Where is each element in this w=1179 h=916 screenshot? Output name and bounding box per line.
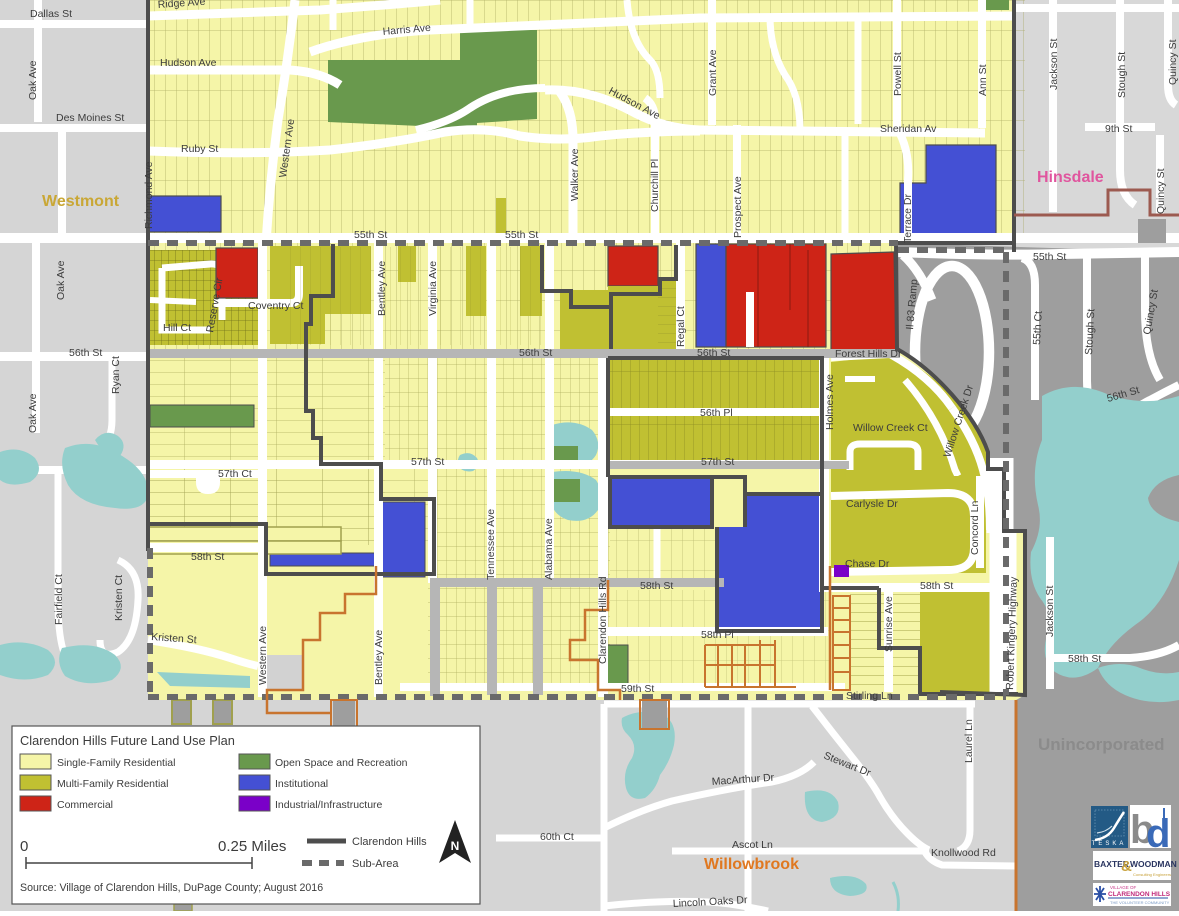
svg-text:Westmont: Westmont [42, 193, 120, 210]
svg-text:VILLAGE OF: VILLAGE OF [1110, 885, 1137, 890]
svg-text:Powell St: Powell St [892, 52, 904, 96]
svg-text:Oak Ave: Oak Ave [27, 60, 39, 100]
svg-text:N: N [451, 839, 460, 853]
svg-text:0.25 Miles: 0.25 Miles [218, 838, 286, 855]
svg-text:Prospect Ave: Prospect Ave [732, 176, 744, 238]
svg-text:56th St: 56th St [697, 347, 730, 359]
svg-text:Grant Ave: Grant Ave [707, 49, 719, 96]
svg-text:Willowbrook: Willowbrook [704, 856, 799, 873]
svg-text:Quincy St: Quincy St [1155, 168, 1167, 214]
svg-text:Dallas St: Dallas St [30, 8, 72, 20]
svg-text:Consulting Engineers: Consulting Engineers [1133, 872, 1171, 877]
svg-text:Oak Ave: Oak Ave [55, 260, 67, 300]
svg-text:58th Pl: 58th Pl [701, 629, 734, 641]
svg-text:58th St: 58th St [920, 580, 953, 592]
svg-text:58th St: 58th St [640, 580, 673, 592]
svg-text:Jackson St: Jackson St [1044, 586, 1056, 637]
svg-text:55th St: 55th St [1033, 251, 1066, 263]
svg-text:Concord Ln: Concord Ln [969, 501, 981, 555]
svg-text:55th St: 55th St [505, 229, 538, 241]
svg-text:Oak Ave: Oak Ave [27, 393, 39, 433]
svg-text:Multi-Family Residential: Multi-Family Residential [57, 778, 168, 790]
svg-text:Industrial/Infrastructure: Industrial/Infrastructure [275, 799, 383, 811]
svg-text:Ann St: Ann St [977, 64, 989, 96]
svg-text:58th St: 58th St [1068, 653, 1101, 665]
svg-text:58th St: 58th St [191, 551, 224, 563]
svg-text:Hudson Ave: Hudson Ave [160, 57, 217, 69]
svg-text:9th St: 9th St [1105, 123, 1133, 135]
svg-text:Commercial: Commercial [57, 799, 113, 811]
svg-text:56th St: 56th St [69, 347, 102, 359]
svg-text:Coventry Ct: Coventry Ct [248, 300, 304, 312]
svg-text:Ruby St: Ruby St [181, 143, 218, 155]
svg-text:Hill Ct: Hill Ct [163, 322, 191, 334]
svg-text:TESKA: TESKA [1092, 841, 1127, 847]
svg-text:Willow Creek Ct: Willow Creek Ct [853, 422, 928, 434]
svg-text:Open Space and Recreation: Open Space and Recreation [275, 757, 408, 769]
svg-text:Des Moines St: Des Moines St [56, 112, 124, 124]
svg-text:59th St: 59th St [621, 683, 654, 695]
svg-text:Laurel Ln: Laurel Ln [963, 719, 975, 763]
svg-text:Alabama Ave: Alabama Ave [543, 518, 555, 580]
svg-text:Kristen Ct: Kristen Ct [113, 575, 125, 621]
svg-text:Carlysle Dr: Carlysle Dr [846, 498, 898, 510]
svg-text:Holmes Ave: Holmes Ave [824, 374, 836, 430]
svg-text:Ascot Ln: Ascot Ln [732, 839, 773, 851]
svg-text:Stough St: Stough St [1083, 308, 1097, 355]
svg-text:57th St: 57th St [701, 456, 734, 468]
svg-text:Jackson St: Jackson St [1048, 39, 1060, 90]
svg-text:Ryan Ct: Ryan Ct [110, 356, 122, 394]
svg-text:56th Pl: 56th Pl [700, 407, 733, 419]
svg-text:60th Ct: 60th Ct [540, 831, 574, 843]
svg-text:Stirling Ln: Stirling Ln [846, 690, 893, 702]
svg-text:Regal Ct: Regal Ct [675, 306, 687, 347]
svg-text:Terrace Dr: Terrace Dr [902, 193, 914, 243]
svg-text:57th Ct: 57th Ct [218, 468, 252, 480]
svg-text:Sunrise Ave: Sunrise Ave [883, 596, 895, 652]
svg-text:Chase Dr: Chase Dr [845, 558, 890, 570]
svg-text:Clarendon Hills: Clarendon Hills [352, 836, 427, 848]
svg-text:Unincorporated: Unincorporated [1038, 735, 1165, 754]
svg-text:Quincy St: Quincy St [1167, 39, 1179, 85]
svg-text:Stough St: Stough St [1116, 52, 1128, 98]
svg-text:55th St: 55th St [354, 229, 387, 241]
svg-text:57th St: 57th St [411, 456, 444, 468]
svg-text:Western Ave: Western Ave [257, 626, 269, 685]
svg-text:Clarendon Hills Future Land Us: Clarendon Hills Future Land Use Plan [20, 733, 235, 748]
svg-text:Clarendon Hills Rd: Clarendon Hills Rd [597, 576, 609, 664]
svg-text:WOODMAN: WOODMAN [1130, 859, 1177, 869]
svg-text:Bentley Ave: Bentley Ave [373, 630, 385, 685]
svg-text:Richmond Ave: Richmond Ave [143, 161, 155, 229]
svg-text:Churchill Pl: Churchill Pl [649, 159, 661, 212]
svg-text:Walker Ave: Walker Ave [569, 148, 581, 201]
svg-text:0: 0 [20, 838, 28, 855]
svg-text:d: d [1146, 812, 1170, 856]
svg-text:55th Ct: 55th Ct [1031, 311, 1045, 346]
svg-text:Sheridan Av: Sheridan Av [880, 123, 937, 135]
svg-text:Forest Hills Dr: Forest Hills Dr [835, 348, 902, 360]
svg-text:Virginia Ave: Virginia Ave [427, 261, 439, 316]
svg-text:Bentley Ave: Bentley Ave [376, 261, 388, 316]
svg-text:Institutional: Institutional [275, 778, 328, 790]
svg-text:THE VOLUNTEER COMMUNITY: THE VOLUNTEER COMMUNITY [1110, 900, 1170, 905]
svg-text:Sub-Area: Sub-Area [352, 858, 399, 870]
svg-text:Fairfield Ct: Fairfield Ct [53, 574, 65, 625]
svg-text:56th St: 56th St [519, 347, 552, 359]
svg-text:Source: Village of Clarendon H: Source: Village of Clarendon Hills, DuPa… [20, 882, 323, 894]
svg-text:CLARENDON HILLS: CLARENDON HILLS [1108, 891, 1171, 898]
svg-text:Tennessee Ave: Tennessee Ave [485, 509, 497, 580]
svg-text:Hinsdale: Hinsdale [1037, 169, 1104, 186]
svg-text:Knollwood Rd: Knollwood Rd [931, 847, 996, 859]
svg-text:Single-Family Residential: Single-Family Residential [57, 757, 175, 769]
